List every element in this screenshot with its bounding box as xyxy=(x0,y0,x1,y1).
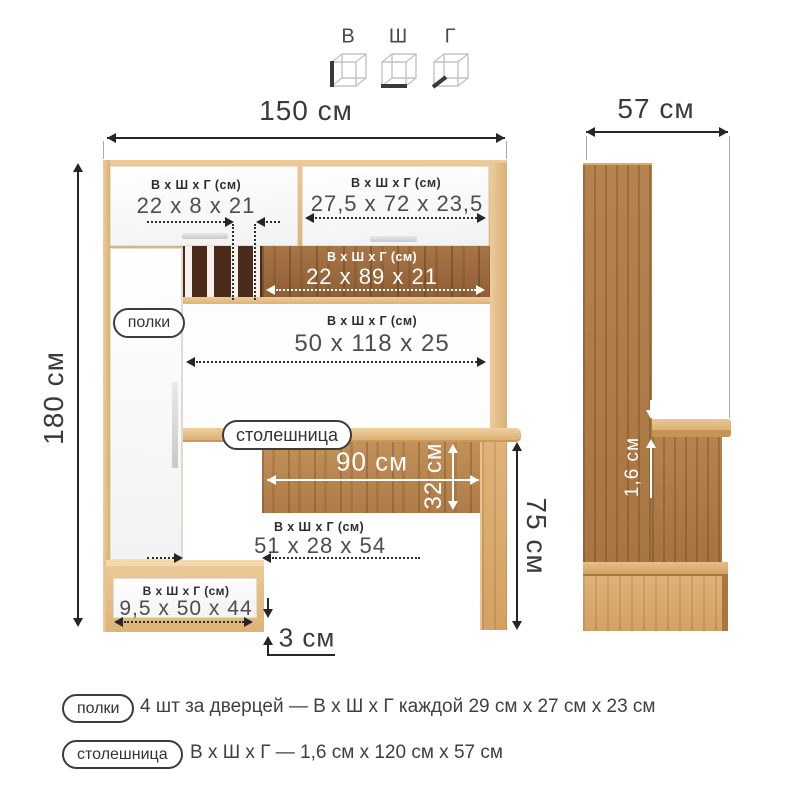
desk-apron-height-dim: 32 см xyxy=(420,443,448,510)
middle-niche-dims: 50 х 118 х 25 xyxy=(294,330,449,358)
top-right-door-handle xyxy=(370,236,417,242)
side-plinth-front xyxy=(583,576,722,631)
front-right-side-panel xyxy=(490,163,507,440)
axis-depth-label: Г xyxy=(445,26,456,49)
front-divider-compartment xyxy=(183,246,262,303)
furniture-dimensions-diagram: В Ш Г 1 xyxy=(0,0,800,800)
side-plinth-side-edge xyxy=(722,576,728,631)
total-width-arrow xyxy=(107,137,505,139)
legend-tabletop-pill-label: столешница xyxy=(77,746,168,764)
under-desk-niche-dims-header: В х Ш х Г (см) xyxy=(274,520,364,534)
top-left-door-dims: 22 х 8 х 21 xyxy=(137,193,256,219)
top-right-door-dims-header: В х Ш х Г (см) xyxy=(351,176,441,190)
side-depth-dim: 57 см xyxy=(617,93,694,125)
shelves-callout: полки xyxy=(113,308,185,338)
side-tabletop-edge xyxy=(652,430,731,437)
legend-tabletop-pill: столешница xyxy=(62,740,183,769)
plinth-gap-dim: 3 см xyxy=(279,623,336,654)
top-left-door-handle xyxy=(182,233,228,239)
tabletop-thickness-dim: 1,6 см xyxy=(622,437,644,497)
axis-height-label: В xyxy=(341,26,354,49)
side-plinth-top xyxy=(583,562,728,576)
drawer-dims: 9,5 х 50 х 44 xyxy=(119,597,252,621)
desk-width-dim: 90 см xyxy=(336,447,408,478)
height-cube-icon xyxy=(328,50,368,90)
legend-shelves-pill-label: полки xyxy=(77,700,119,718)
desk-height-dim: 75 см xyxy=(520,497,552,574)
front-shelf-board xyxy=(183,297,490,304)
middle-niche-dims-header: В х Ш х Г (см) xyxy=(327,314,417,328)
top-right-door-dims: 27,5 х 72 х 23,5 xyxy=(311,191,484,217)
tabletop-callout: столешница xyxy=(222,420,352,450)
desk-right-leg xyxy=(480,442,507,630)
total-height-arrow xyxy=(77,165,79,625)
tabletop-callout-label: столешница xyxy=(236,425,338,446)
side-tabletop-surface xyxy=(652,419,731,430)
width-cube-icon xyxy=(378,50,418,90)
depth-cube-icon xyxy=(430,50,470,90)
total-height-dim: 180 см xyxy=(38,351,70,445)
top-left-door-dims-header: В х Ш х Г (см) xyxy=(151,178,241,192)
legend-tabletop-text: В х Ш х Г — 1,6 см х 120 см х 57 см xyxy=(190,742,503,764)
shelf-band-dims-header: В х Ш х Г (см) xyxy=(327,250,417,264)
divider xyxy=(185,246,192,297)
side-back-panel xyxy=(652,437,722,562)
shelves-callout-label: полки xyxy=(128,314,170,332)
shelf-band-dims: 22 х 89 х 21 xyxy=(306,264,438,290)
drawer-dims-header: В х Ш х Г (см) xyxy=(143,584,230,598)
under-desk-niche-dims: 51 х 28 х 54 xyxy=(254,533,386,559)
divider xyxy=(207,246,214,297)
total-width-dim: 150 см xyxy=(259,95,353,127)
side-main-panel xyxy=(583,163,652,630)
legend-shelves-text: 4 шт за дверцей — В х Ш х Г каждой 29 см… xyxy=(140,696,656,718)
legend-shelves-pill: полки xyxy=(62,694,134,723)
drawer-top-edge xyxy=(106,560,264,566)
axis-width-label: Ш xyxy=(389,26,407,49)
wardrobe-door-handle xyxy=(172,382,178,468)
